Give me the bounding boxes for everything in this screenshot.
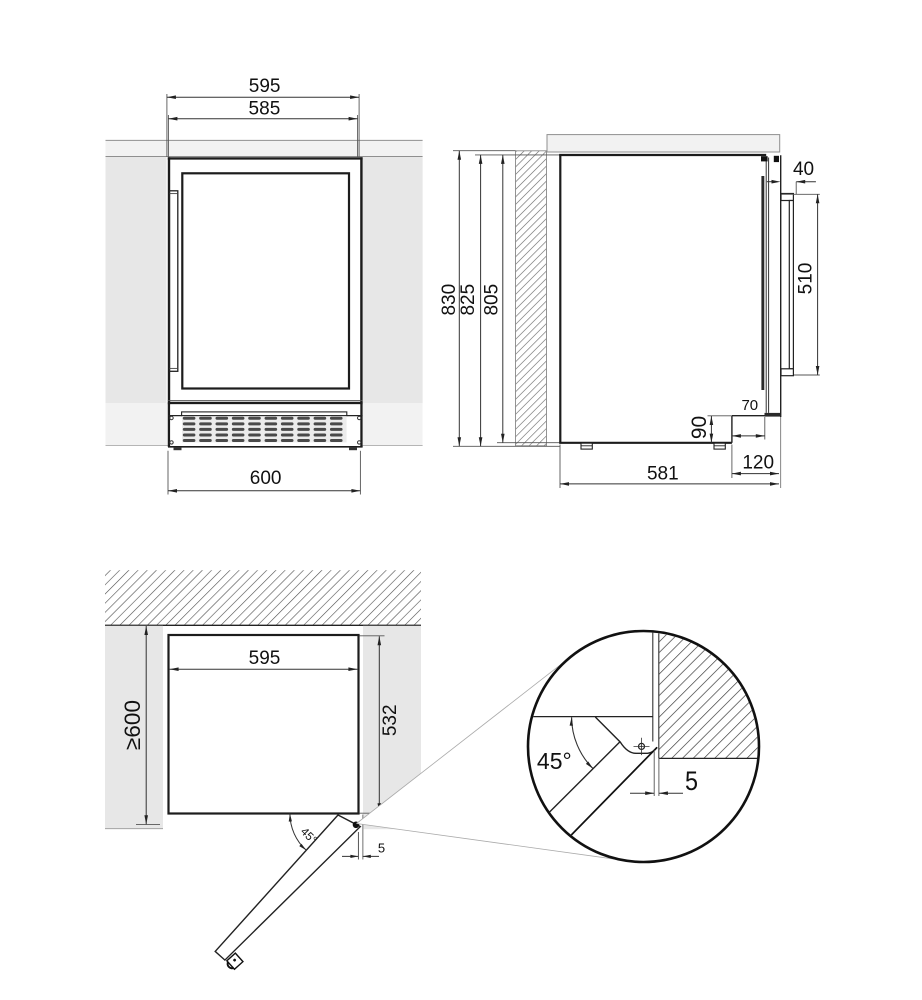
svg-text:40: 40 [793, 159, 814, 180]
svg-text:90: 90 [688, 416, 711, 439]
svg-text:510: 510 [795, 263, 816, 295]
svg-text:5: 5 [685, 766, 698, 796]
svg-text:830: 830 [439, 284, 460, 316]
svg-text:45°: 45° [537, 748, 572, 774]
svg-text:805: 805 [482, 284, 503, 316]
svg-text:532: 532 [380, 704, 401, 736]
svg-text:120: 120 [742, 452, 774, 473]
svg-text:70: 70 [741, 397, 758, 414]
svg-text:5: 5 [378, 840, 385, 855]
svg-text:581: 581 [647, 464, 679, 485]
svg-text:595: 595 [249, 648, 281, 669]
svg-text:≥600: ≥600 [120, 700, 145, 750]
svg-text:585: 585 [249, 99, 281, 120]
svg-text:595: 595 [249, 76, 281, 97]
svg-text:825: 825 [458, 284, 479, 316]
svg-text:600: 600 [250, 468, 282, 489]
